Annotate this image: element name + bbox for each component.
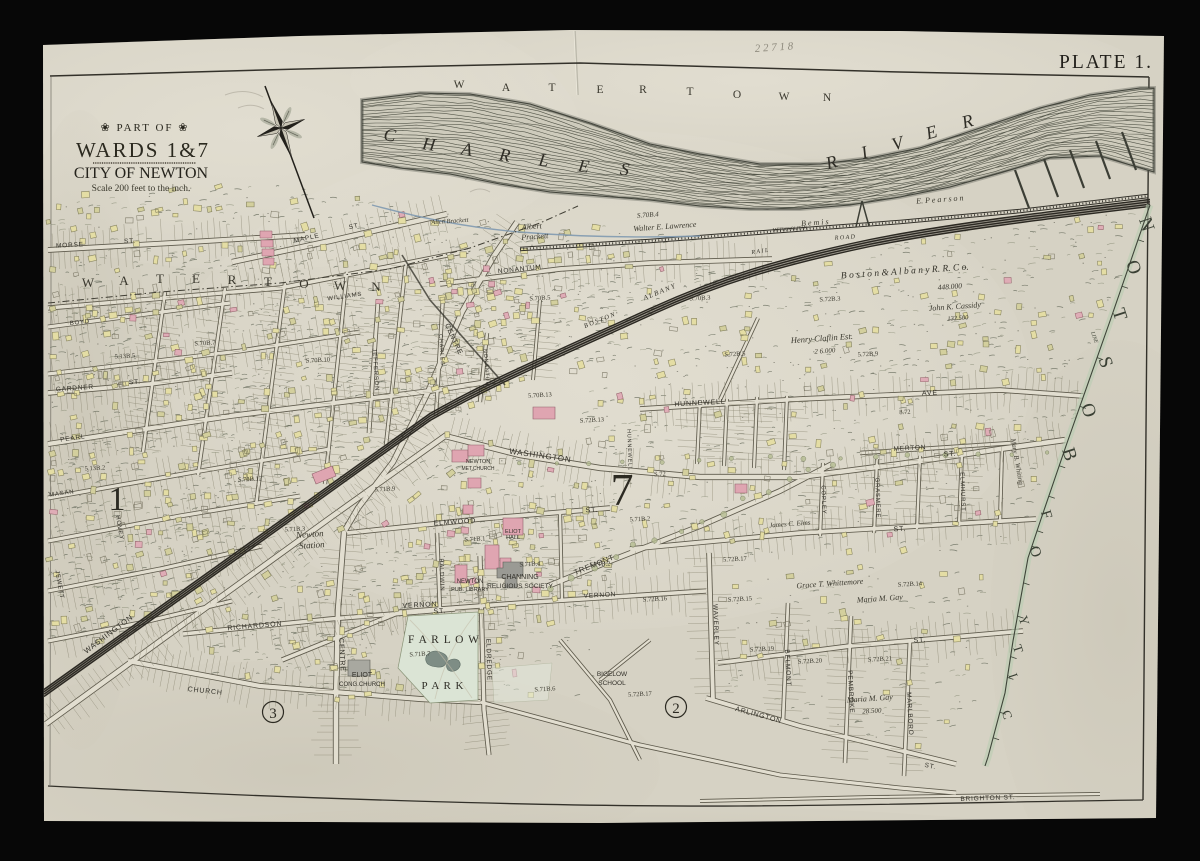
svg-text:MET.CHURCH: MET.CHURCH bbox=[461, 466, 494, 472]
svg-text:1: 1 bbox=[109, 481, 126, 518]
svg-text:5.70B.13: 5.70B.13 bbox=[528, 391, 552, 399]
svg-text:T: T bbox=[264, 274, 272, 289]
svg-text:T: T bbox=[156, 271, 164, 286]
svg-text:B e m i s: B e m i s bbox=[801, 217, 829, 228]
svg-text:S.70B.5: S.70B.5 bbox=[529, 294, 550, 302]
svg-text:5.71B.2: 5.71B.2 bbox=[629, 515, 650, 523]
svg-text:N: N bbox=[823, 92, 832, 104]
svg-text:W: W bbox=[779, 91, 790, 103]
svg-text:2 6.000: 2 6.000 bbox=[814, 346, 836, 355]
svg-text:ST.: ST. bbox=[585, 507, 598, 515]
svg-text:5.72B.17: 5.72B.17 bbox=[723, 555, 748, 563]
svg-text:8.72: 8.72 bbox=[899, 409, 911, 417]
svg-text:W: W bbox=[454, 79, 465, 91]
svg-text:A: A bbox=[119, 273, 129, 288]
svg-text:T: T bbox=[548, 82, 555, 94]
svg-text:O: O bbox=[299, 276, 308, 291]
svg-text:CONG.CHURCH: CONG.CHURCH bbox=[339, 682, 385, 688]
svg-text:RELIGIOUS SOCIETY: RELIGIOUS SOCIETY bbox=[487, 583, 553, 590]
svg-text:28.500: 28.500 bbox=[862, 706, 882, 715]
svg-text:ST.: ST. bbox=[129, 379, 141, 387]
svg-text:W: W bbox=[82, 275, 95, 290]
svg-text:SCHOOL: SCHOOL bbox=[598, 680, 626, 687]
svg-text:ST.: ST. bbox=[893, 526, 906, 534]
svg-text:T: T bbox=[686, 86, 693, 98]
svg-text:BALDWIN: BALDWIN bbox=[437, 558, 444, 591]
svg-text:S.72B.16: S.72B.16 bbox=[643, 595, 668, 603]
svg-text:5.71B.3: 5.71B.3 bbox=[284, 525, 305, 533]
svg-text:NEWTON: NEWTON bbox=[466, 459, 490, 465]
svg-text:S.71B.1: S.71B.1 bbox=[464, 535, 485, 543]
svg-text:S.72B.15: S.72B.15 bbox=[728, 595, 753, 603]
svg-text:S.72B.3: S.72B.3 bbox=[819, 295, 840, 303]
svg-text:S.71B.7: S.71B.7 bbox=[409, 650, 431, 658]
svg-text:COPLEY: COPLEY bbox=[819, 485, 826, 514]
svg-text:3: 3 bbox=[269, 706, 277, 722]
svg-text:O: O bbox=[733, 89, 741, 101]
svg-text:ELDREDGE: ELDREDGE bbox=[484, 639, 492, 681]
svg-text:S.71B.6: S.71B.6 bbox=[534, 685, 556, 693]
svg-text:NEWTON: NEWTON bbox=[457, 579, 484, 585]
svg-text:PUB. LIBRARY: PUB. LIBRARY bbox=[451, 587, 489, 593]
svg-text:ST.: ST. bbox=[433, 607, 446, 615]
svg-text:S.70B.10: S.70B.10 bbox=[306, 356, 331, 364]
svg-text:WARDS 1&7: WARDS 1&7 bbox=[76, 138, 210, 162]
svg-text:5.13B.5: 5.13B.5 bbox=[114, 352, 135, 360]
svg-text:Scale 200 feet to the inch.: Scale 200 feet to the inch. bbox=[92, 183, 191, 194]
svg-text:5.13B.2: 5.13B.2 bbox=[84, 464, 105, 472]
svg-text:CITY OF NEWTON: CITY OF NEWTON bbox=[74, 165, 209, 182]
svg-text:❀ PART OF ❀: ❀ PART OF ❀ bbox=[101, 122, 190, 134]
svg-text:Albert: Albert bbox=[521, 221, 543, 231]
svg-text:WAVERLEY: WAVERLEY bbox=[711, 604, 719, 646]
svg-text:7: 7 bbox=[611, 464, 634, 515]
svg-text:CHANNING: CHANNING bbox=[501, 574, 538, 581]
svg-text:ST.: ST. bbox=[124, 238, 136, 246]
svg-text:S.72B.20: S.72B.20 bbox=[798, 657, 823, 665]
svg-text:S.72: S.72 bbox=[654, 471, 666, 479]
svg-text:448.000: 448.000 bbox=[937, 281, 962, 292]
svg-text:S.70B.7: S.70B.7 bbox=[194, 339, 216, 347]
svg-text:MORSE: MORSE bbox=[56, 241, 84, 249]
svg-text:S.72B.13: S.72B.13 bbox=[580, 416, 605, 424]
svg-text:P A R K: P A R K bbox=[422, 680, 465, 692]
svg-text:S.72B.21: S.72B.21 bbox=[868, 655, 893, 663]
svg-text:PLATE 1.: PLATE 1. bbox=[1059, 52, 1153, 73]
svg-text:N: N bbox=[371, 279, 381, 294]
svg-text:S.71B.2: S.71B.2 bbox=[589, 560, 610, 568]
svg-text:S.70B.12: S.70B.12 bbox=[238, 475, 263, 483]
svg-text:5.72B.17: 5.72B.17 bbox=[628, 690, 653, 698]
svg-text:S.70B.4: S.70B.4 bbox=[637, 210, 660, 220]
svg-text:S.72B.14: S.72B.14 bbox=[898, 580, 923, 588]
svg-text:ELIOT: ELIOT bbox=[352, 672, 373, 679]
svg-text:R: R bbox=[228, 272, 237, 287]
svg-text:W: W bbox=[334, 278, 347, 293]
svg-text:A: A bbox=[502, 82, 511, 94]
svg-text:S.70B.3: S.70B.3 bbox=[689, 294, 710, 302]
svg-text:HALL: HALL bbox=[506, 535, 520, 541]
svg-text:ST.: ST. bbox=[943, 451, 956, 459]
svg-text:BIGELOW: BIGELOW bbox=[597, 671, 628, 678]
svg-text:ST.: ST. bbox=[913, 636, 926, 644]
svg-text:5.71B.9: 5.71B.9 bbox=[374, 485, 395, 493]
svg-text:R: R bbox=[639, 84, 647, 96]
svg-text:S.72B.5: S.72B.5 bbox=[724, 350, 745, 358]
svg-text:S.72B.19: S.72B.19 bbox=[750, 645, 775, 653]
svg-text:E: E bbox=[596, 84, 603, 96]
svg-text:E: E bbox=[192, 271, 200, 286]
svg-text:Station: Station bbox=[299, 539, 326, 551]
svg-text:5.72B.9: 5.72B.9 bbox=[857, 350, 878, 358]
svg-text:S.71B.4: S.71B.4 bbox=[519, 560, 541, 568]
svg-text:F A R L O W: F A R L O W bbox=[408, 634, 480, 646]
svg-text:AVE: AVE bbox=[922, 390, 938, 398]
svg-text:2: 2 bbox=[672, 701, 680, 717]
